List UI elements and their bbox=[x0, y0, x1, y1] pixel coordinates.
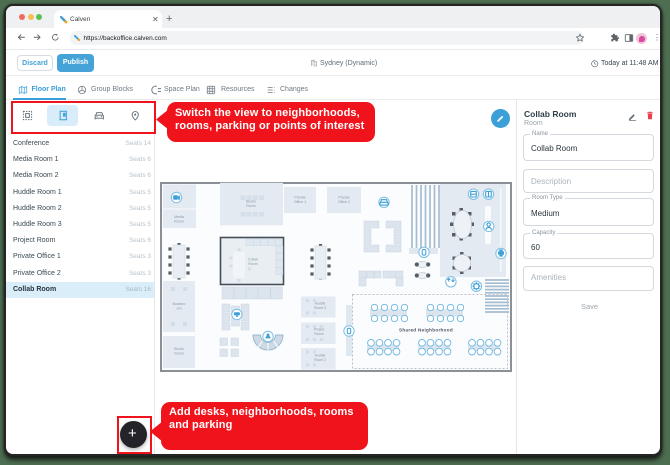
svg-text:Studio: Studio bbox=[174, 347, 184, 351]
svg-text:Room: Room bbox=[314, 332, 323, 336]
svg-text:Huddle: Huddle bbox=[315, 302, 326, 306]
svg-text:Office 2: Office 2 bbox=[338, 200, 350, 204]
svg-text:Room: Room bbox=[174, 220, 184, 224]
svg-text:Boardro: Boardro bbox=[173, 302, 186, 306]
svg-text:Media: Media bbox=[174, 215, 184, 219]
svg-text:Office 1: Office 1 bbox=[294, 200, 306, 204]
svg-text:Private: Private bbox=[338, 196, 349, 200]
svg-text:Room: Room bbox=[174, 352, 184, 356]
svg-text:om: om bbox=[177, 307, 182, 311]
svg-text:Room: Room bbox=[246, 204, 256, 208]
svg-text:Shared Neighborhood: Shared Neighborhood bbox=[399, 328, 453, 333]
svg-text:Project: Project bbox=[314, 328, 325, 332]
svg-text:Huddle: Huddle bbox=[315, 354, 326, 358]
svg-text:Private: Private bbox=[294, 196, 305, 200]
svg-text:Studio: Studio bbox=[246, 200, 256, 204]
svg-text:Collab: Collab bbox=[248, 258, 258, 262]
svg-text:Room 2: Room 2 bbox=[314, 358, 326, 362]
svg-text:Room 3: Room 3 bbox=[314, 306, 326, 310]
svg-text:Room: Room bbox=[248, 262, 258, 266]
